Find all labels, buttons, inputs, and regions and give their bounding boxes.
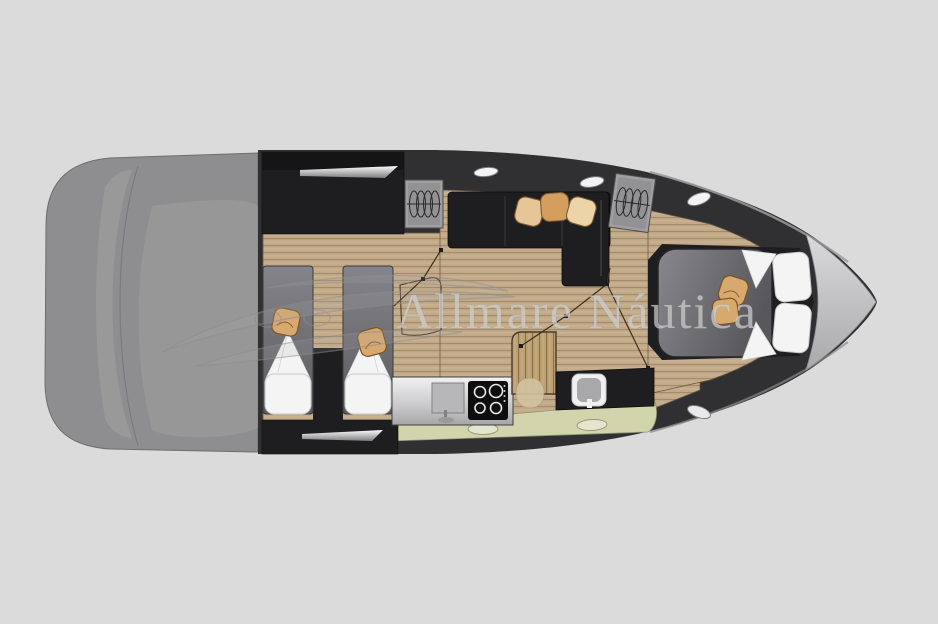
roof-hatch-icon	[405, 180, 443, 228]
step-pad	[516, 378, 544, 408]
pillow	[265, 374, 311, 414]
sofa-pillow	[540, 192, 570, 222]
toilet-icon	[572, 374, 606, 408]
faucet-base	[438, 417, 454, 423]
yacht-floorplan: Allmare Náutica	[0, 0, 938, 624]
stern-deck	[45, 153, 258, 452]
head-bathroom	[556, 368, 654, 410]
roof-hatch-icon	[608, 173, 655, 232]
watermark-text: Allmare Náutica	[396, 283, 758, 339]
between-beds-cabinet	[313, 348, 343, 422]
galley	[392, 377, 513, 425]
sink-icon	[432, 383, 464, 413]
pillow	[772, 252, 812, 303]
pillow	[772, 303, 812, 354]
pillow	[345, 374, 391, 414]
cooktop-icon	[468, 381, 508, 420]
yacht-floorplan-image: Allmare Náutica	[0, 0, 938, 624]
